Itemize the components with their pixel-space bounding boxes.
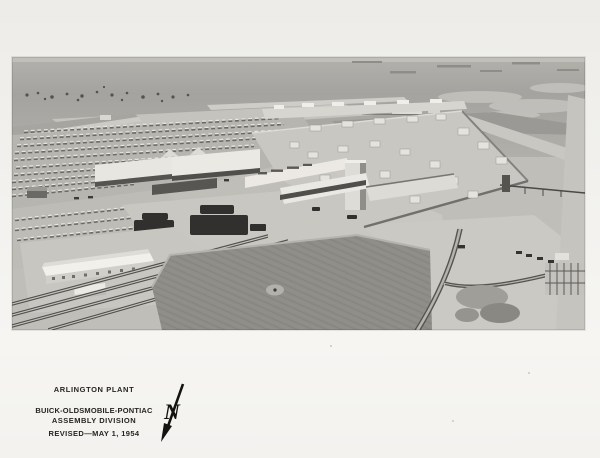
- caption-revision-date: REVISED—MAY 1, 1954: [25, 429, 163, 439]
- dust-speck: [330, 345, 332, 347]
- caption-division-line2: ASSEMBLY DIVISION: [25, 416, 163, 426]
- north-arrow-head: [161, 423, 172, 442]
- aerial-photo: [12, 57, 585, 330]
- north-arrow-label: N: [163, 399, 181, 424]
- dust-speck: [528, 372, 530, 374]
- caption-plant-name: ARLINGTON PLANT: [25, 385, 163, 395]
- aerial-photo-scene: [12, 57, 585, 330]
- north-arrow: N: [148, 381, 192, 449]
- dust-speck: [452, 420, 454, 422]
- photo-caption: ARLINGTON PLANT BUICK-OLDSMOBILE-PONTIAC…: [25, 385, 163, 439]
- small-shed: [27, 187, 47, 198]
- caption-division-line1: BUICK-OLDSMOBILE-PONTIAC: [25, 406, 163, 416]
